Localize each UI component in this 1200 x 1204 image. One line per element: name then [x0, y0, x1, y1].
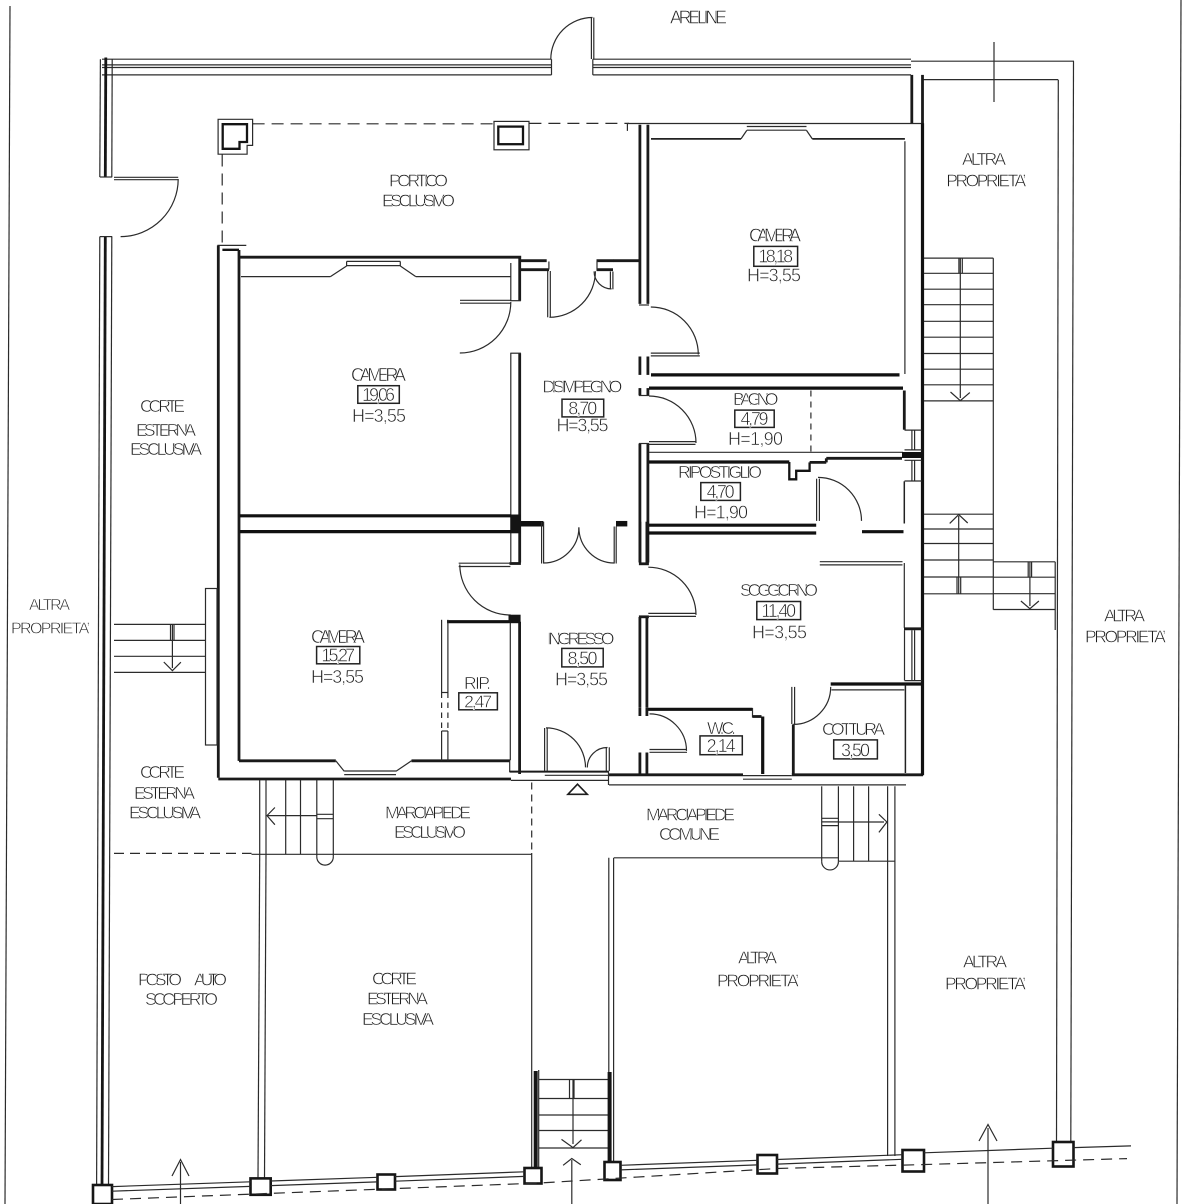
svg-text:AUTO: AUTO — [194, 970, 227, 990]
svg-text:ESCLUSIVO: ESCLUSIVO — [382, 191, 455, 211]
svg-text:ALTRA: ALTRA — [738, 948, 777, 968]
svg-text:PROPRIETA’: PROPRIETA’ — [1085, 627, 1166, 647]
svg-text:CORTE: CORTE — [372, 969, 417, 989]
svg-text:ALTRA: ALTRA — [962, 149, 1006, 169]
svg-text:PROPRIETA’: PROPRIETA’ — [945, 974, 1026, 994]
svg-text:CAMERA: CAMERA — [351, 365, 406, 385]
svg-text:SOGGIORNO: SOGGIORNO — [740, 580, 818, 600]
svg-text:4,70: 4,70 — [707, 482, 735, 502]
svg-text:PROPRIETA’: PROPRIETA’ — [717, 971, 799, 991]
svg-text:11,40: 11,40 — [761, 601, 796, 621]
svg-text:2,47: 2,47 — [464, 691, 492, 711]
svg-text:3,50: 3,50 — [841, 740, 870, 760]
svg-text:H=3,55: H=3,55 — [352, 406, 406, 426]
svg-text:H=3,55: H=3,55 — [747, 266, 801, 286]
svg-text:COMUNE: COMUNE — [659, 824, 720, 844]
svg-text:H=1,90: H=1,90 — [694, 503, 748, 523]
svg-text:DISIMPEGNO: DISIMPEGNO — [542, 376, 622, 396]
svg-text:CORTE: CORTE — [140, 762, 185, 782]
svg-text:H=1,90: H=1,90 — [728, 429, 783, 449]
svg-text:2,14: 2,14 — [707, 736, 736, 756]
svg-text:H=3,55: H=3,55 — [555, 669, 608, 689]
svg-text:ESTERNA: ESTERNA — [367, 989, 428, 1009]
svg-text:8,50: 8,50 — [568, 649, 598, 669]
svg-text:ALTRA: ALTRA — [963, 952, 1007, 972]
svg-text:15,27: 15,27 — [321, 645, 355, 665]
svg-text:MARCIAPIEDE: MARCIAPIEDE — [385, 803, 471, 823]
svg-text:BAGNO: BAGNO — [733, 389, 779, 409]
svg-text:ESCLUSIVA: ESCLUSIVA — [362, 1009, 434, 1029]
svg-text:H=3,55: H=3,55 — [557, 416, 609, 436]
svg-text:ALTRA: ALTRA — [1104, 606, 1145, 626]
svg-text:ESTERNA: ESTERNA — [136, 420, 196, 440]
svg-text:W.C.: W.C. — [707, 718, 736, 738]
svg-text:ALTRA: ALTRA — [29, 597, 70, 614]
svg-text:PROPRIETA’: PROPRIETA’ — [11, 621, 90, 638]
svg-text:ESCLUSIVA: ESCLUSIVA — [130, 439, 202, 459]
svg-text:ESCLUSIVA: ESCLUSIVA — [129, 803, 201, 823]
svg-text:RIPOSTIGLIO: RIPOSTIGLIO — [678, 462, 762, 482]
svg-text:CAMERA: CAMERA — [311, 627, 365, 647]
svg-text:H=3,55: H=3,55 — [752, 623, 807, 643]
svg-text:ESCLUSIVO: ESCLUSIVO — [394, 822, 466, 842]
svg-text:INGRESSO: INGRESSO — [547, 628, 615, 648]
svg-text:MARCIAPIEDE: MARCIAPIEDE — [646, 805, 735, 825]
svg-text:ESTERNA: ESTERNA — [134, 783, 195, 803]
svg-text:SCOPERTO: SCOPERTO — [145, 989, 218, 1009]
svg-text:18,18: 18,18 — [758, 247, 793, 267]
svg-text:PORTICO: PORTICO — [389, 171, 448, 191]
svg-text:POSTO: POSTO — [138, 970, 182, 990]
svg-text:COTTURA: COTTURA — [822, 719, 885, 739]
svg-text:19,06: 19,06 — [362, 385, 395, 405]
svg-text:RIP.: RIP. — [464, 673, 491, 693]
svg-text:CORTE: CORTE — [140, 396, 185, 416]
svg-text:4,79: 4,79 — [741, 409, 769, 429]
svg-text:ARELINE: ARELINE — [670, 8, 727, 28]
svg-text:PROPRIETA’: PROPRIETA’ — [946, 171, 1026, 191]
svg-text:CAMERA: CAMERA — [749, 226, 801, 246]
svg-text:H=3,55: H=3,55 — [311, 667, 364, 687]
